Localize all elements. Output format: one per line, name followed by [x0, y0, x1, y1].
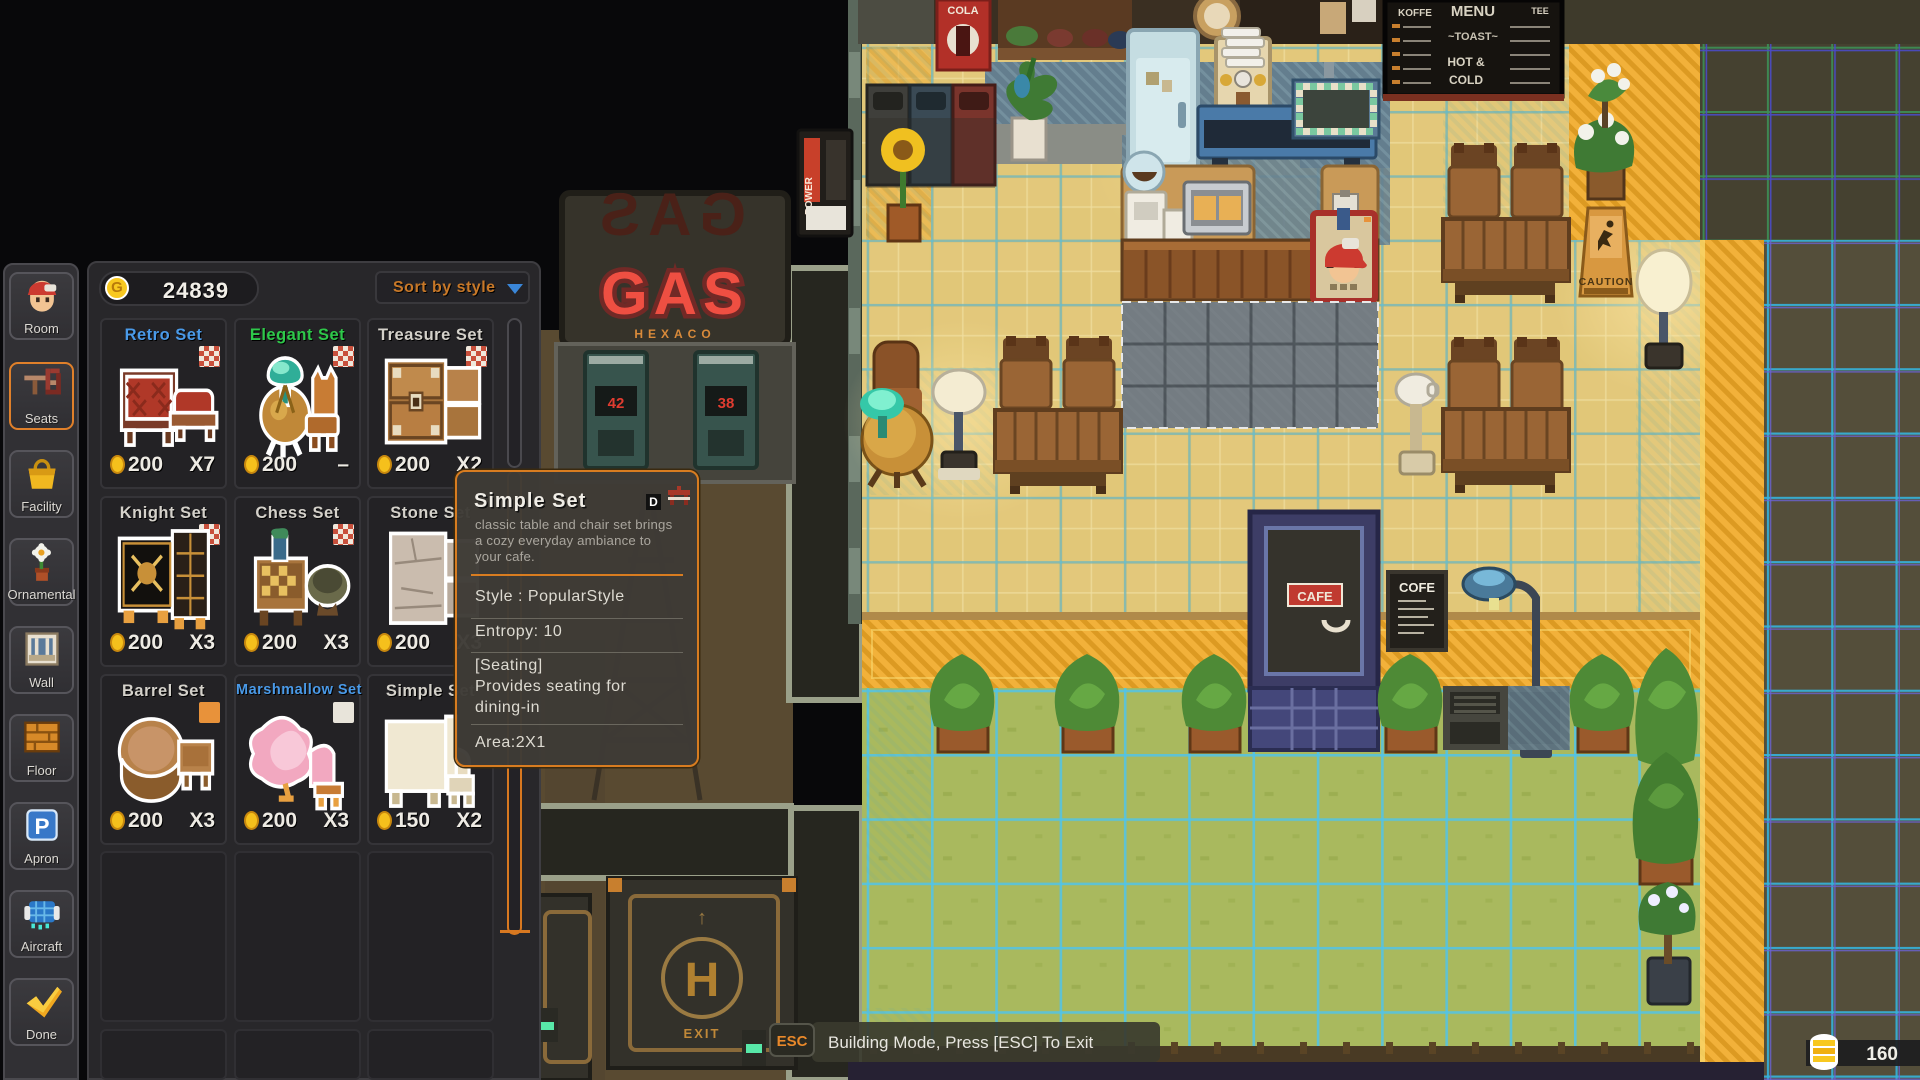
svg-text:HOT &: HOT & — [1447, 55, 1485, 69]
svg-text:~TOAST~: ~TOAST~ — [1448, 31, 1499, 43]
svg-text:COFE: COFE — [1399, 580, 1435, 595]
svg-text:CAUTION: CAUTION — [1579, 276, 1634, 288]
svg-text:42: 42 — [608, 395, 625, 412]
svg-text:GAS: GAS — [601, 260, 749, 327]
svg-text:KOFFE: KOFFE — [1398, 8, 1432, 19]
svg-text:COLA: COLA — [947, 5, 978, 17]
svg-text:COLD: COLD — [1449, 73, 1483, 87]
svg-text:38: 38 — [718, 395, 735, 412]
svg-text:MENU: MENU — [1451, 3, 1495, 20]
svg-text:TEE: TEE — [1531, 6, 1549, 16]
svg-text:H: H — [685, 954, 720, 1007]
svg-text:CAFE: CAFE — [1297, 589, 1333, 604]
svg-text:P: P — [34, 814, 49, 839]
svg-text:EXIT: EXIT — [684, 1026, 721, 1041]
svg-text:↑: ↑ — [697, 907, 707, 929]
svg-text:GAS: GAS — [592, 181, 746, 248]
svg-text:HEXACO: HEXACO — [634, 327, 715, 341]
svg-text:ESC: ESC — [777, 1033, 808, 1050]
svg-text:160: 160 — [1866, 1044, 1898, 1065]
svg-text:Building Mode, Press [ESC] To: Building Mode, Press [ESC] To Exit — [828, 1033, 1093, 1052]
